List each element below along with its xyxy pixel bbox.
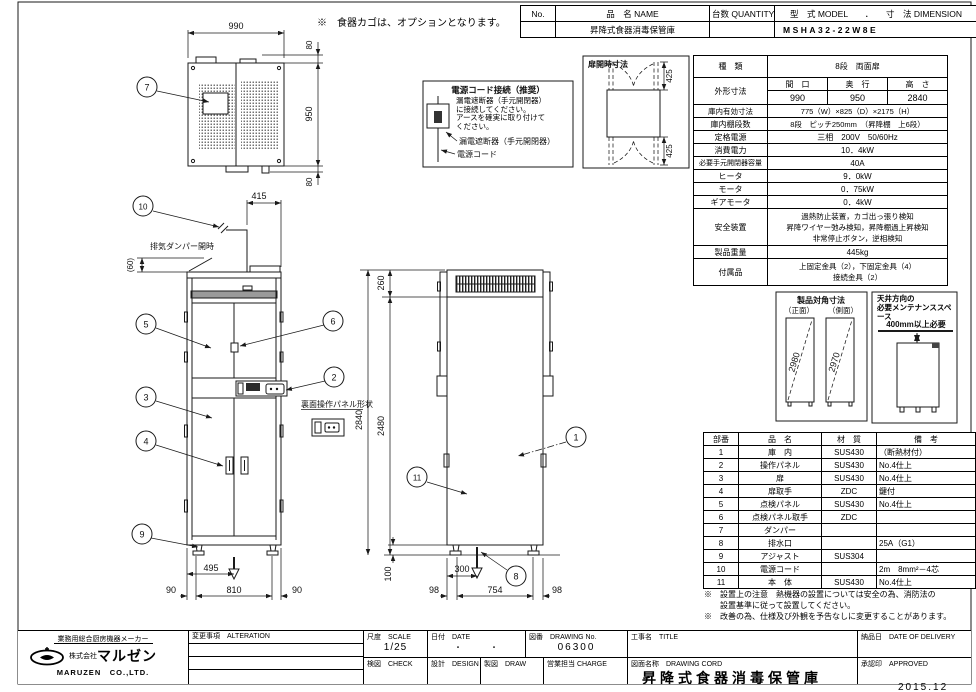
door-open-title: 扉開時寸法 [587, 59, 628, 69]
inspection-latch [231, 343, 238, 352]
spec-label: 種 類 [694, 56, 768, 78]
parts-table: 部番 品 名 材 質 備 考 1庫 内SUS430（断熱材付） 2操作パネルSU… [703, 432, 976, 589]
callout-3: 3 [143, 393, 148, 403]
header-name-label: 品 名 NAME [556, 6, 710, 22]
spec-value: 2840 [888, 91, 948, 105]
spec-subhead: 高 さ [888, 78, 948, 91]
dim-front-height: 2840 [354, 410, 364, 430]
charge-cell: 営業担当 CHARGE [543, 657, 627, 684]
callout-2: 2 [331, 373, 336, 383]
power-cord [226, 230, 247, 272]
maker-name: マルゼン [97, 646, 157, 666]
vent-perforation [241, 80, 279, 150]
power-box-body: 漏電遮断器（手元開閉器） に接続してください。 アースを確実に取り付けて くださ… [456, 97, 568, 131]
diagonal-box: 製品対角寸法 （正面） （側面） 2980 2970 [776, 292, 867, 421]
diagonal-front-label: （正面） [784, 306, 814, 315]
spec-label: 安全装置 [694, 209, 768, 246]
dim-base-h: 100 [383, 566, 393, 581]
breaker-label: 漏電遮断器（手元開閉器） [459, 136, 555, 146]
delivery-label: 納品日 DATE OF DELIVERY [858, 631, 971, 642]
title-label: 工事名 TITLE [628, 631, 857, 642]
alteration-row [189, 644, 363, 657]
spec-label: ヒータ [694, 170, 768, 183]
table-row: 3扉SUS430No.4仕上 [704, 472, 976, 485]
dim-top-depth: 950 [304, 106, 314, 121]
title-cell: 工事名 TITLE [627, 630, 857, 657]
spec-value: 8段 両面扉 [768, 56, 948, 78]
spec-value: 40A [768, 157, 948, 170]
spec-value: 0．4kW [768, 196, 948, 209]
callout-8: 8 [513, 572, 518, 582]
spec-value: 9．0kW [768, 170, 948, 183]
table-row: 1庫 内SUS430（断熱材付） [704, 446, 976, 459]
drawing-no-cell: 図番 DRAWING No. 06300 [525, 630, 627, 657]
cord-label: 電源コード [457, 150, 497, 159]
door-open-dim-top: 425 [665, 69, 674, 83]
drawing-name-value: 昇降式食器消毒保管庫 [628, 668, 857, 688]
date-cell: 日付 DATE ・ ・ [427, 630, 525, 657]
drawing-no-value: 06300 [526, 642, 627, 653]
spec-label: 製品重量 [694, 246, 768, 259]
maker-name-prefix: 株式会社 [69, 651, 97, 661]
callout-6: 6 [330, 317, 335, 327]
spec-value: 775（W）×825（D）×2175（H） [768, 105, 948, 118]
spec-label: 庫内棚段数 [694, 118, 768, 131]
dim-side-left: 98 [429, 585, 439, 595]
diagonal-side-label: （側面） [828, 305, 858, 315]
date-value: ・ ・ [428, 642, 525, 653]
dim-drain-side: 300 [454, 564, 469, 574]
install-note: ※ 設置上の注意 熱機器の設置については安全の為、消防法の 設置基準に従って設置… [704, 590, 956, 611]
spec-label: 庫内有効寸法 [694, 105, 768, 118]
dim-side-center: 754 [487, 585, 502, 595]
header-model-label: 型 式 MODEL ． 寸 法 DIMENSION [775, 6, 976, 22]
header-no-label: No. [521, 6, 556, 22]
parts-head: 品 名 [739, 433, 822, 446]
sheet-date: 2015.12 [898, 682, 948, 692]
dim-top-80a: 80 [305, 40, 314, 49]
draw-label: 製図 DRAW [481, 658, 543, 669]
table-row: 11本 体SUS430No.4仕上 [704, 576, 976, 589]
door-open-dim-bottom: 425 [665, 144, 674, 158]
callout-5: 5 [143, 320, 148, 330]
power-box-title: 電源コード接続（推奨） [451, 85, 545, 95]
parts-head: 材 質 [822, 433, 877, 446]
check-label: 検図 CHECK [364, 658, 427, 669]
spec-value: 990 [768, 91, 828, 105]
spec-value: 三相 200V 50/60Hz [768, 131, 948, 144]
spec-label: 定格電源 [694, 131, 768, 144]
parts-head: 備 考 [877, 433, 976, 446]
scale-cell: 尺度 SCALE 1/25 [363, 630, 427, 657]
spec-label: 必要手元開閉器容量 [694, 157, 768, 170]
dim-vent-h: 260 [376, 275, 386, 290]
spec-value: 950 [828, 91, 888, 105]
table-row: 2操作パネルSUS430No.4仕上 [704, 459, 976, 472]
callout-9: 9 [139, 530, 144, 540]
header-qty-label: 台数 QUANTITY [710, 6, 775, 22]
table-row: 9アジャストSUS304 [704, 550, 976, 563]
spec-label: ギアモータ [694, 196, 768, 209]
table-row: 7ダンパー [704, 524, 976, 537]
design-label: 設計 DESIGN [428, 658, 480, 669]
header-model-value: MSHA32-22W8E [775, 22, 976, 38]
table-row: 10電源コード2m 8mm²－4芯 [704, 563, 976, 576]
approved-label: 承認印 APPROVED [858, 658, 971, 669]
callout-1: 1 [573, 433, 578, 443]
parts-head: 部番 [704, 433, 739, 446]
exhaust-damper-label: 排気ダンパー開時 [150, 241, 214, 251]
spec-label: 消費電力 [694, 144, 768, 157]
table-row: 8排水口25A（G1） [704, 537, 976, 550]
dim-front-left: 90 [166, 585, 176, 595]
option-note: ※ 食器カゴは、オプションとなります。 [317, 14, 506, 29]
table-row: 6点検パネル取手ZDC [704, 511, 976, 524]
header-no-value [521, 22, 556, 38]
alteration-row [189, 670, 363, 683]
callout-10: 10 [139, 203, 148, 212]
spec-value: 過熱防止装置，カゴ出っ張り検知 昇降ワイヤー弛み検知，昇降棚過上昇検知 非常停止… [768, 209, 948, 246]
header-table: No. 品 名 NAME 台数 QUANTITY 型 式 MODEL ． 寸 法… [520, 5, 976, 38]
dim-body-height: 2480 [376, 416, 386, 436]
draw-cell: 製図 DRAW [480, 657, 543, 684]
alteration-cell: 変更事項 ALTERATION [188, 630, 363, 684]
spec-value: 0．75kW [768, 183, 948, 196]
callout-4: 4 [143, 437, 148, 447]
drawing-name-cell: 図面名称 DRAWING CORD 昇降式食器消毒保管庫 [627, 657, 857, 684]
callout-7: 7 [144, 83, 149, 93]
check-cell: 検図 CHECK [363, 657, 427, 684]
header-qty-value [710, 22, 775, 38]
drawing-sheet: 990 80 950 80 7 電源コード接続（推奨） 漏電遮断器（手元開閉器）… [0, 0, 976, 692]
maruzen-logo [28, 646, 66, 666]
scale-label: 尺度 SCALE [364, 631, 427, 642]
date-label: 日付 DATE [428, 631, 525, 642]
damper-plate [203, 93, 228, 114]
dim-damper-open: (60) [126, 258, 135, 273]
dim-cord-offset: 415 [251, 191, 266, 201]
door-open-box: 扉開時寸法 425 425 [583, 56, 689, 168]
spec-value: 8段 ピッチ250mm （昇降棚 上6段） [768, 118, 948, 131]
design-cell: 設計 DESIGN [427, 657, 480, 684]
dim-top-80b: 80 [305, 177, 314, 186]
dim-drain-front: 495 [203, 563, 218, 573]
maker-cell: 業務用総合厨房機器メーカー 株式会社 マルゼン MARUZEN CO.,LTD. [18, 630, 188, 684]
callout-11: 11 [413, 474, 422, 483]
spec-label: 外形寸法 [694, 78, 768, 105]
front-view: 415 (60) 排気ダンパー開時 10 5 3 4 9 6 2 裏面操作パネル… [126, 191, 373, 600]
dim-top-width: 990 [228, 21, 243, 31]
dim-side-right: 98 [552, 585, 562, 595]
spec-label: 付属品 [694, 259, 768, 286]
table-row: 5点検パネルSUS430No.4仕上 [704, 498, 976, 511]
spec-label: モータ [694, 183, 768, 196]
maintenance-title: 天井方向の 必要メンテナンススペース [877, 294, 955, 321]
scale-value: 1/25 [364, 642, 427, 653]
header-name-value: 昇降式食器消毒保管庫 [556, 22, 710, 38]
dim-front-center: 810 [226, 585, 241, 595]
spec-subhead: 奥 行 [828, 78, 888, 91]
spec-value: 上固定金具（2），下固定金具（4） 接続金具（2） [768, 259, 948, 286]
charge-label: 営業担当 CHARGE [544, 658, 627, 669]
spec-value: 10．4kW [768, 144, 948, 157]
spec-table: 種 類 8段 両面扉 外形寸法 間 口 奥 行 高 さ 990 950 2840… [693, 55, 948, 286]
dim-front-right: 90 [292, 585, 302, 595]
delivery-cell: 納品日 DATE OF DELIVERY [857, 630, 971, 657]
drawing-no-label: 図番 DRAWING No. [526, 631, 627, 642]
maker-en: MARUZEN CO.,LTD. [18, 667, 188, 678]
spec-value: 445kg [768, 246, 948, 259]
table-row: 4扉取手ZDC鍵付 [704, 485, 976, 498]
alteration-label: 変更事項 ALTERATION [189, 631, 363, 644]
rear-panel-label: 裏面操作パネル形状 [301, 399, 373, 409]
spec-subhead: 間 口 [768, 78, 828, 91]
approved-cell: 承認印 APPROVED [857, 657, 971, 684]
side-view: 2840 260 2480 100 300 98 754 98 1 11 8 [354, 270, 586, 600]
alteration-row [189, 657, 363, 670]
top-view: 990 80 950 80 7 [137, 21, 323, 186]
change-note: ※ 改善の為、仕様及び外観を予告なしに変更することがあります。 [704, 612, 960, 623]
diagonal-title: 製品対角寸法 [796, 295, 845, 305]
maker-tagline: 業務用総合厨房機器メーカー [54, 636, 153, 644]
